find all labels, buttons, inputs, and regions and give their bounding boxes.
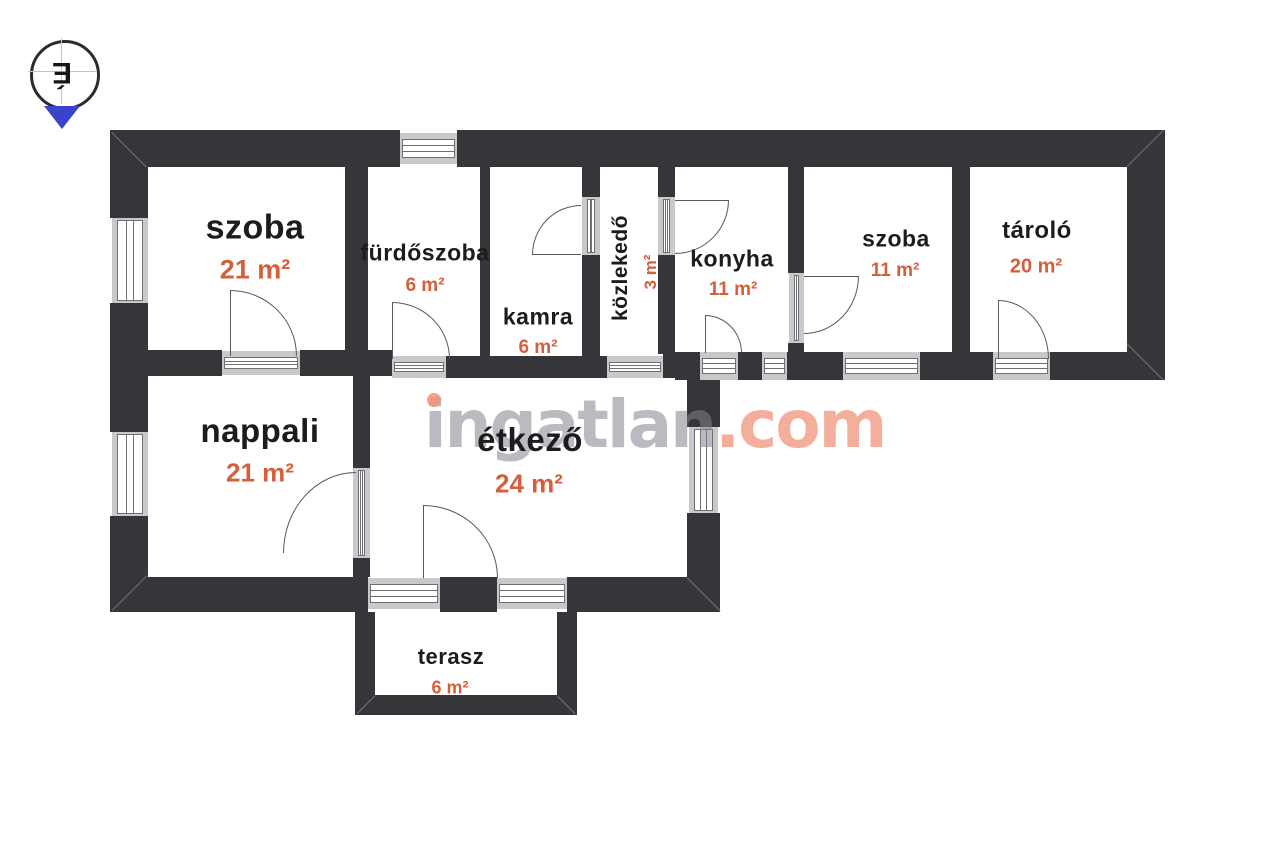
door-etkezo-terasz	[368, 578, 440, 609]
door-opening-kozlekedo-etkezo	[607, 356, 663, 378]
door-arc-szoba1	[230, 290, 297, 356]
door-arc-furdoszoba	[392, 302, 450, 359]
room-area-szoba2: 11 m²	[871, 260, 920, 282]
wall-segment	[675, 352, 700, 380]
room-label-szoba2: szoba	[862, 226, 930, 253]
room-area-etkezo: 24 m²	[495, 469, 563, 500]
wall-segment	[582, 255, 600, 356]
room-area-nappali: 21 m²	[226, 458, 294, 489]
watermark-i-dot-icon	[427, 393, 441, 407]
room-label-terasz: terasz	[418, 644, 485, 670]
wall-segment	[920, 352, 993, 380]
wall-segment	[582, 356, 607, 378]
room-label-szoba1: szoba	[206, 209, 305, 248]
wall-segment	[110, 577, 368, 612]
wall-segment	[788, 130, 804, 273]
wall-segment	[557, 612, 577, 695]
wall-segment	[110, 130, 148, 218]
room-label-kamra: kamra	[503, 304, 573, 331]
room-label-kozlekedo: közlekedő	[609, 215, 633, 321]
room-label-nappali: nappali	[200, 412, 319, 450]
window-konyha-bottom	[762, 352, 787, 380]
wall-segment	[110, 303, 148, 432]
wall-segment	[582, 130, 600, 197]
wall-segment	[567, 577, 720, 612]
door-opening-kozlekedo-konyha	[658, 197, 675, 255]
wall-segment	[457, 130, 1165, 167]
wall-segment	[300, 350, 392, 376]
room-area-terasz: 6 m²	[431, 678, 468, 699]
room-area-kozlekedo: 3 m²	[641, 255, 661, 290]
wall-segment	[952, 130, 970, 354]
door-arc-etkezo-terasz	[423, 505, 498, 578]
door-opening-furdoszoba-etkezo	[392, 356, 446, 378]
floorplan-canvas: É	[0, 0, 1280, 850]
wall-segment	[1127, 130, 1165, 380]
wall-segment	[1050, 352, 1127, 380]
room-label-etkezo: étkező	[477, 421, 583, 459]
wall-segment	[355, 612, 375, 695]
door-arc-tarolo	[998, 300, 1049, 359]
room-area-tarolo: 20 m²	[1010, 256, 1062, 279]
room-label-tarolo: tároló	[1002, 217, 1072, 245]
door-opening-kamra-kozlekedo	[582, 197, 600, 255]
wall-segment	[353, 376, 370, 468]
door-arc-szoba2	[804, 276, 859, 334]
window-szoba1-left	[112, 218, 148, 303]
wall-segment	[446, 356, 582, 378]
door-arc-kamra	[532, 205, 581, 255]
room-area-kamra: 6 m²	[518, 337, 557, 359]
wall-segment	[738, 352, 762, 380]
room-label-furdoszoba: fürdőszoba	[361, 240, 490, 267]
window-nappali-left	[112, 432, 148, 516]
door-arc-konyha-bottom	[705, 315, 742, 353]
wall-segment	[440, 577, 497, 612]
wall-segment	[353, 558, 370, 577]
window-szoba2-bottom	[843, 352, 920, 380]
watermark-tld: .com	[715, 386, 885, 463]
room-area-szoba1: 21 m²	[220, 255, 291, 286]
window-furdoszoba-top	[400, 133, 457, 164]
wall-segment	[787, 352, 843, 380]
room-area-furdoszoba: 6 m²	[405, 275, 444, 297]
room-label-konyha: konyha	[690, 246, 774, 273]
door-konyha-bottom	[700, 352, 738, 380]
window-etkezo-bottom	[497, 578, 567, 609]
door-opening-konyha-szoba2	[789, 273, 804, 343]
compass-north-letter: É	[52, 55, 72, 89]
compass-north-arrow-icon	[44, 106, 80, 129]
room-area-konyha: 11 m²	[709, 279, 758, 301]
wall-segment	[148, 350, 222, 376]
wall-segment	[658, 130, 675, 197]
